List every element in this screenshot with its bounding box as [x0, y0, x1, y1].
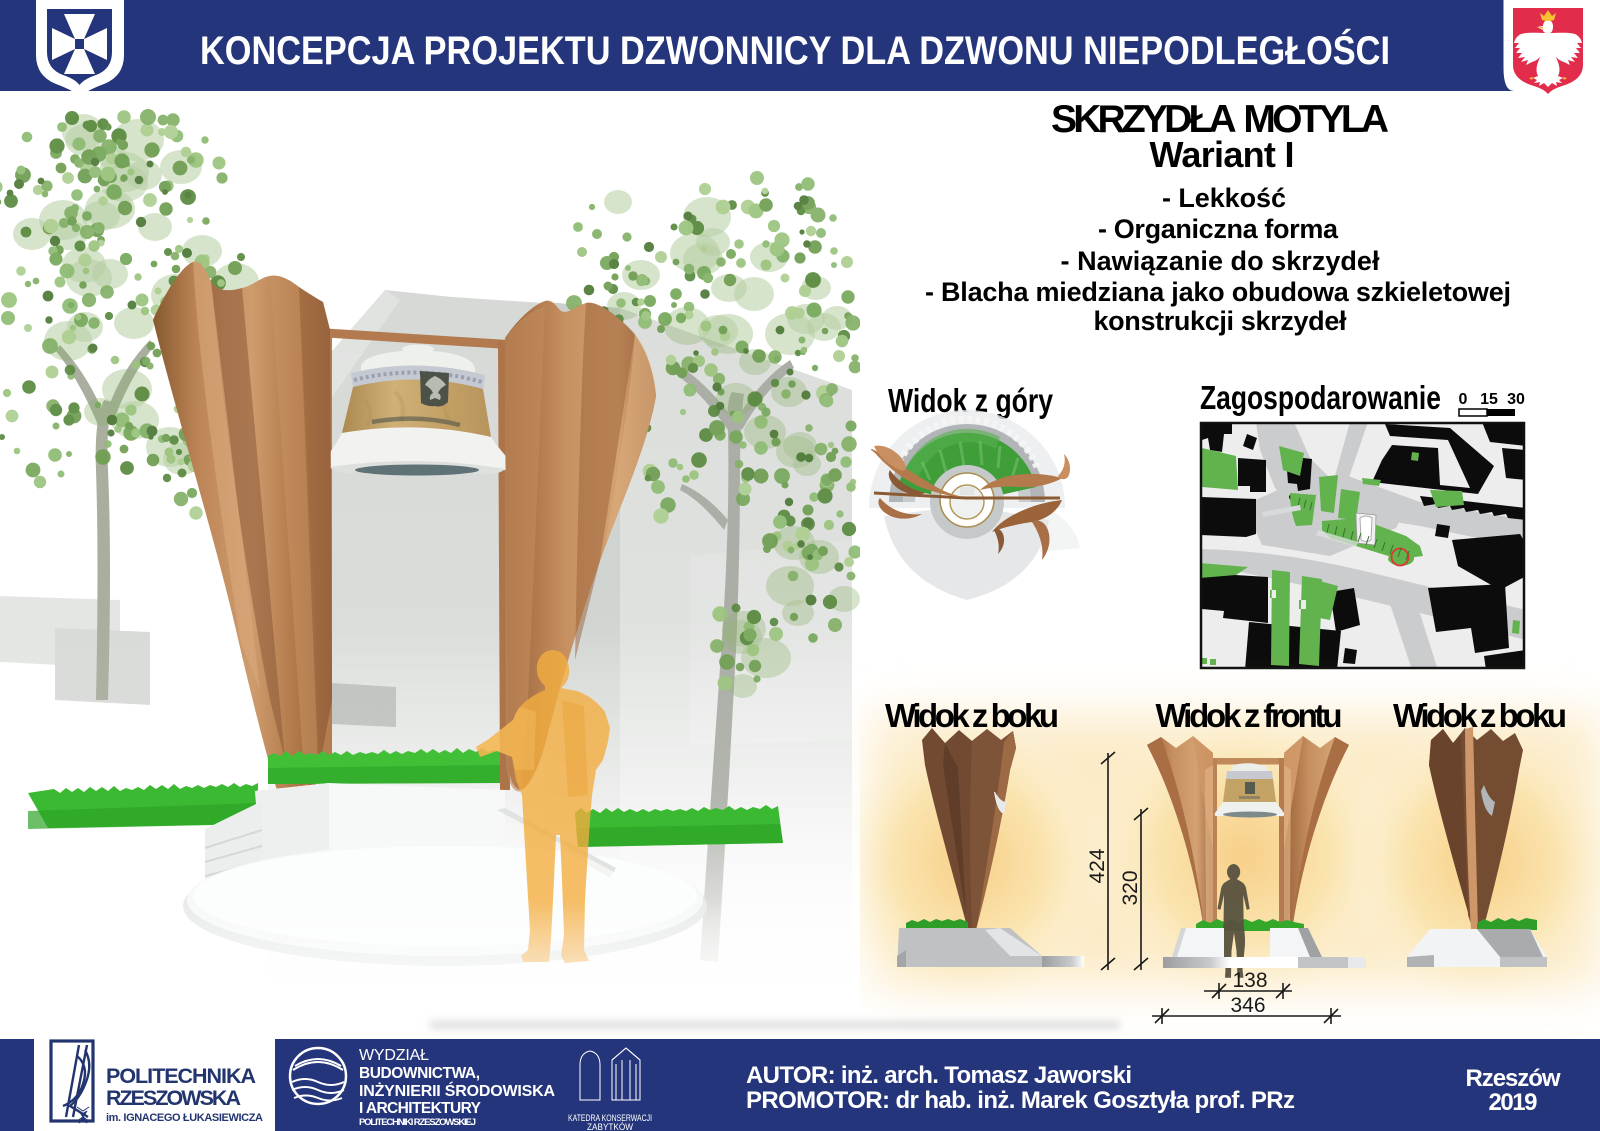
svg-text:Wariant I: Wariant I — [1150, 134, 1295, 175]
svg-text:138: 138 — [1232, 969, 1267, 992]
svg-text:Zagospodarowanie: Zagospodarowanie — [1200, 379, 1441, 416]
svg-text:AUTOR: inż. arch. Tomasz Jawor: AUTOR: inż. arch. Tomasz Jaworski — [746, 1062, 1132, 1089]
svg-text:Widok z boku: Widok z boku — [1393, 697, 1567, 734]
svg-text:30: 30 — [1507, 391, 1525, 408]
svg-text:I ARCHITEKTURY: I ARCHITEKTURY — [359, 1100, 482, 1117]
svg-text:PROMOTOR: dr hab. inż. Marek: PROMOTOR: dr hab. inż. Marek Gosztyła pr… — [746, 1087, 1295, 1114]
svg-text:im. IGNACEGO ŁUKASIEWICZA: im. IGNACEGO ŁUKASIEWICZA — [106, 1112, 263, 1124]
svg-text:POLITECHNIKI RZESZOWSKIEJ: POLITECHNIKI RZESZOWSKIEJ — [359, 1117, 476, 1128]
svg-text:Rzeszów: Rzeszów — [1466, 1065, 1561, 1092]
svg-text:320: 320 — [1119, 870, 1142, 905]
svg-text:0: 0 — [1459, 391, 1468, 408]
svg-text:ZABYTKÓW: ZABYTKÓW — [587, 1122, 633, 1131]
svg-text:Widok z boku: Widok z boku — [885, 697, 1059, 734]
svg-text:Widok z frontu: Widok z frontu — [1156, 697, 1343, 734]
svg-text:- Lekkość: - Lekkość — [1162, 183, 1286, 213]
svg-text:- Blacha miedziana jako obudow: - Blacha miedziana jako obudowa szkielet… — [925, 277, 1511, 307]
svg-text:- Nawiązanie do skrzydeł: - Nawiązanie do skrzydeł — [1061, 246, 1380, 276]
svg-text:424: 424 — [1086, 848, 1109, 883]
svg-text:KONCEPCJA PROJEKTU DZWONNICY D: KONCEPCJA PROJEKTU DZWONNICY DLA DZWONU … — [200, 29, 1390, 73]
svg-text:- Organiczna forma: - Organiczna forma — [1098, 214, 1339, 244]
svg-text:INŻYNIERII ŚRODOWISKA: INŻYNIERII ŚRODOWISKA — [359, 1081, 555, 1100]
svg-text:BUDOWNICTWA,: BUDOWNICTWA, — [359, 1065, 480, 1082]
svg-text:POLITECHNIKA: POLITECHNIKA — [106, 1064, 256, 1088]
svg-text:konstrukcji skrzydeł: konstrukcji skrzydeł — [1094, 306, 1347, 336]
svg-text:15: 15 — [1480, 391, 1498, 408]
svg-text:RZESZOWSKA: RZESZOWSKA — [106, 1086, 241, 1110]
svg-text:2019: 2019 — [1489, 1089, 1538, 1116]
svg-text:346: 346 — [1230, 994, 1265, 1017]
svg-text:WYDZIAŁ: WYDZIAŁ — [359, 1047, 429, 1064]
